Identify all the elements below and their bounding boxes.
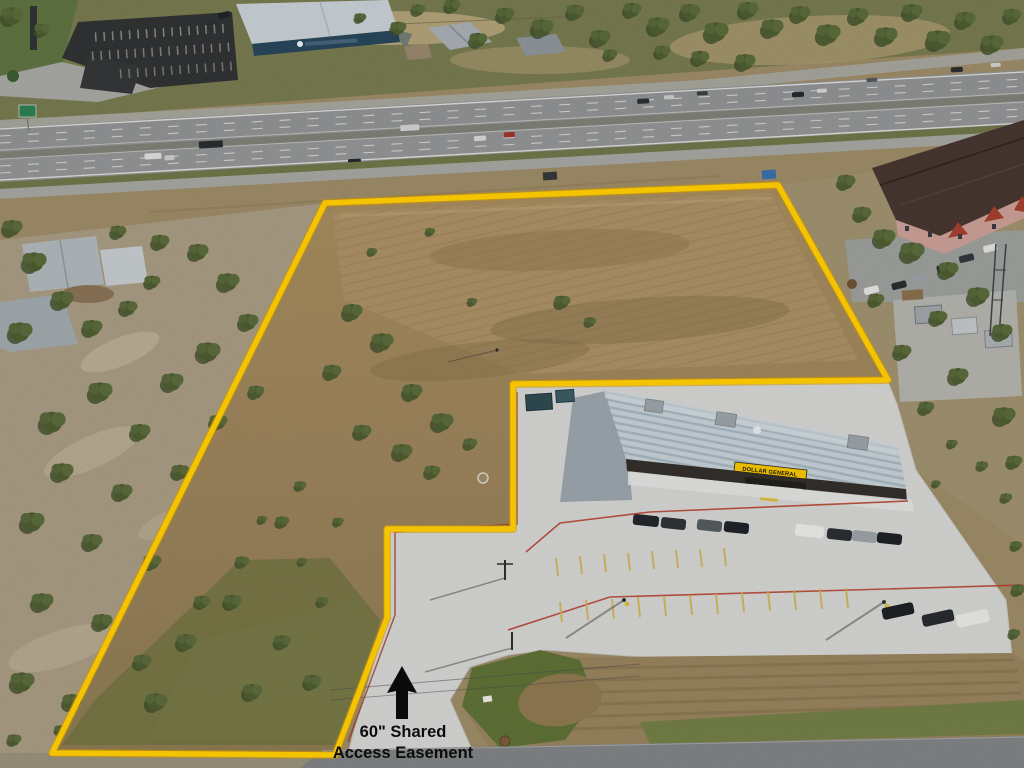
- photo-grain: [0, 0, 1024, 768]
- scene-canvas: DOLLAR GENERAL: [0, 0, 1024, 768]
- aerial-property-photo: DOLLAR GENERAL: [0, 0, 1024, 768]
